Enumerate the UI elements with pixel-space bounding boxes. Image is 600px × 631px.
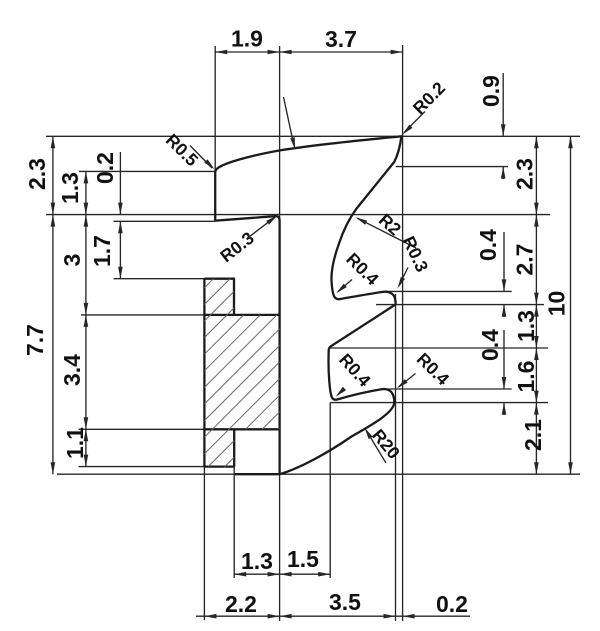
svg-text:0.4: 0.4 bbox=[477, 329, 503, 361]
svg-text:1.3: 1.3 bbox=[241, 548, 273, 574]
svg-text:1.1: 1.1 bbox=[62, 427, 88, 459]
svg-text:0.4: 0.4 bbox=[475, 229, 501, 261]
svg-text:0.2: 0.2 bbox=[436, 591, 468, 617]
svg-text:2.1: 2.1 bbox=[520, 419, 546, 451]
svg-text:2.7: 2.7 bbox=[512, 244, 538, 276]
svg-text:3.4: 3.4 bbox=[59, 354, 85, 386]
svg-text:2.3: 2.3 bbox=[512, 158, 538, 190]
svg-text:0.9: 0.9 bbox=[478, 75, 504, 107]
svg-text:1.7: 1.7 bbox=[89, 235, 115, 267]
svg-text:1.3: 1.3 bbox=[57, 172, 83, 204]
svg-text:3: 3 bbox=[59, 254, 85, 267]
svg-text:0.2: 0.2 bbox=[92, 152, 118, 184]
svg-text:3.5: 3.5 bbox=[329, 589, 361, 615]
svg-text:1.9: 1.9 bbox=[231, 26, 263, 52]
svg-text:3.7: 3.7 bbox=[325, 26, 357, 52]
svg-text:2.3: 2.3 bbox=[24, 158, 50, 190]
svg-text:7.7: 7.7 bbox=[22, 324, 48, 356]
svg-text:1.6: 1.6 bbox=[513, 361, 539, 393]
svg-text:10: 10 bbox=[544, 291, 570, 317]
svg-text:1.5: 1.5 bbox=[287, 546, 319, 572]
svg-text:1.3: 1.3 bbox=[513, 310, 539, 342]
svg-text:2.2: 2.2 bbox=[225, 591, 257, 617]
